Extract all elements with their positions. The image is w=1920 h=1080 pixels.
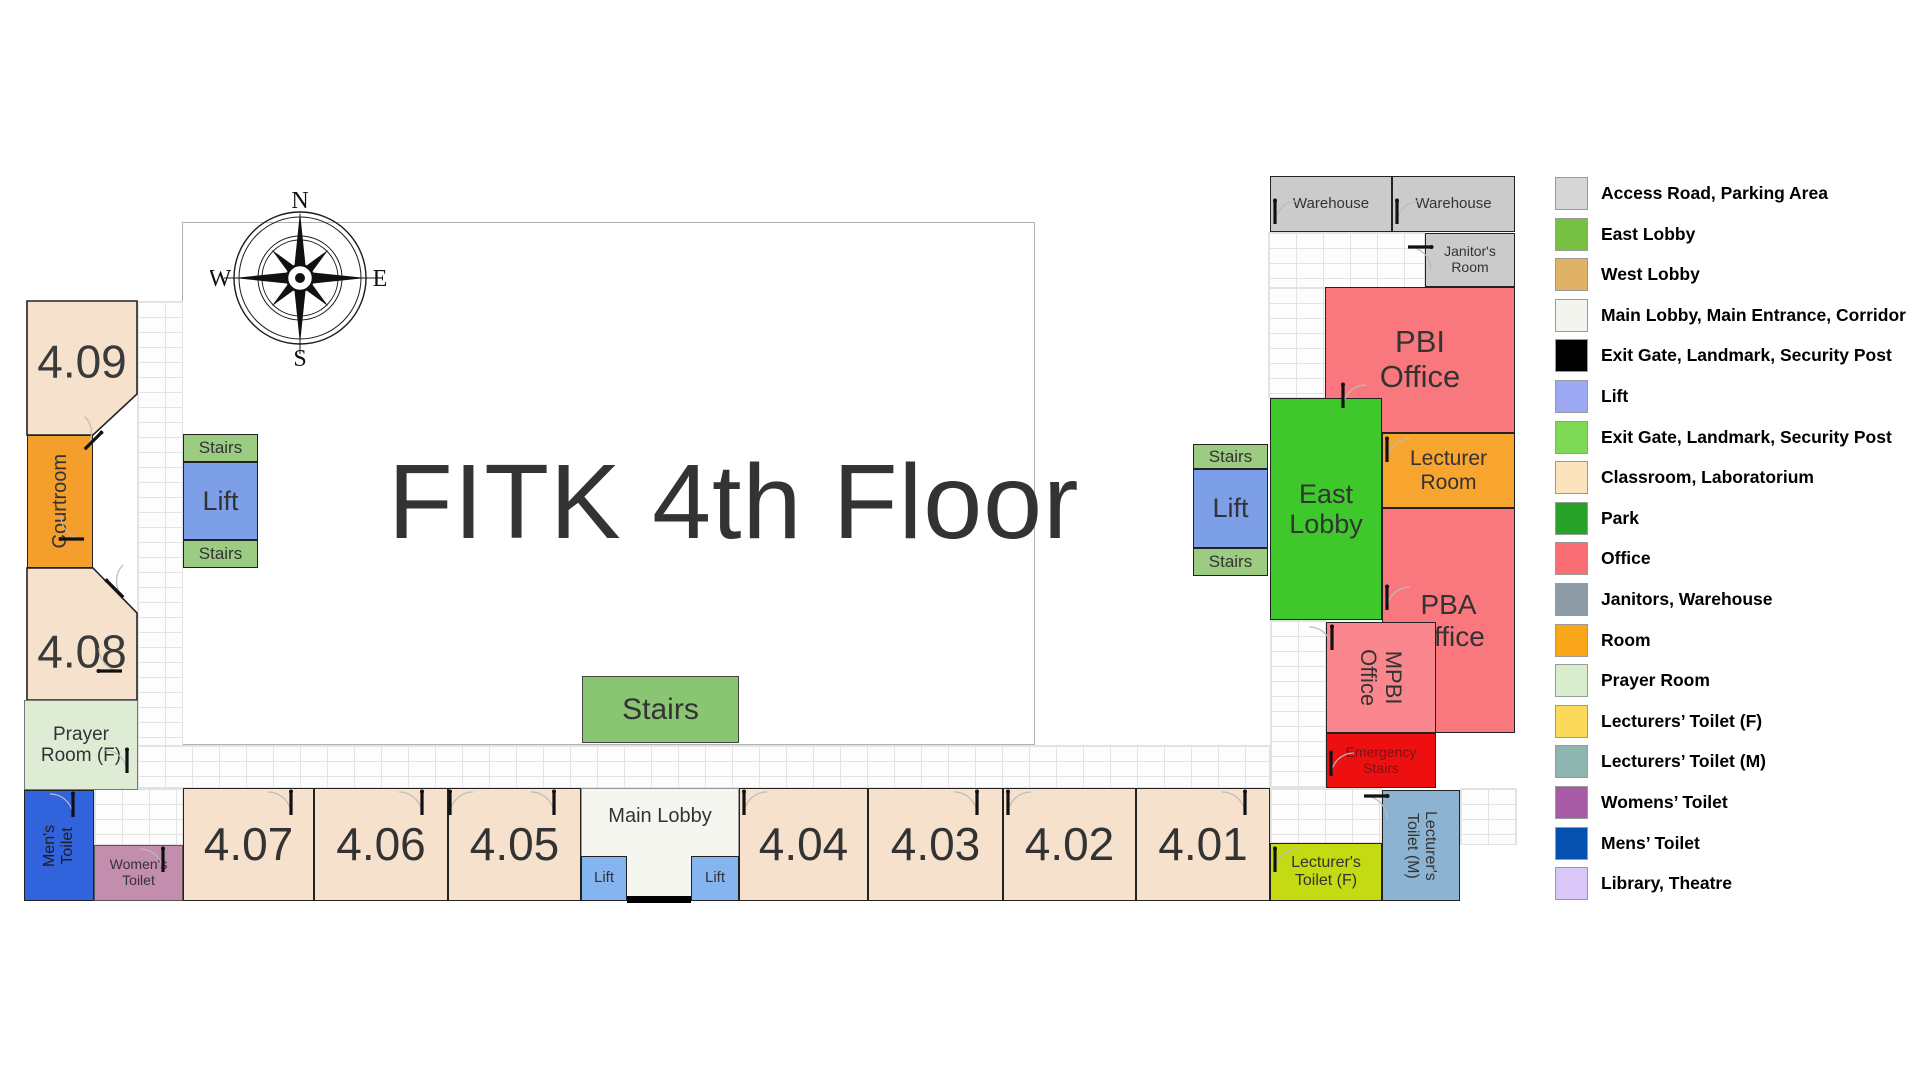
legend-item: Exit Gate, Landmark, Security Post — [1555, 339, 1892, 372]
door-icon — [1394, 198, 1422, 226]
legend-label: Lecturers’ Toilet (F) — [1601, 711, 1762, 732]
door-icon — [1005, 789, 1033, 817]
legend-swatch — [1555, 421, 1588, 454]
legend-label: Library, Theatre — [1601, 873, 1732, 894]
legend-item: Mens’ Toilet — [1555, 827, 1700, 860]
door-icon — [102, 747, 130, 775]
legend-swatch — [1555, 664, 1588, 697]
legend-label: Prayer Room — [1601, 670, 1710, 691]
legend-label: Room — [1601, 630, 1651, 651]
legend-swatch — [1555, 299, 1588, 332]
legend-swatch — [1555, 461, 1588, 494]
legend-label: Lecturers’ Toilet (M) — [1601, 751, 1766, 772]
lecturers-toilet-m-label: Lecturer's Toilet (M) — [1403, 811, 1439, 881]
east-lobby: East Lobby — [1270, 398, 1382, 620]
main-lobby-lift-right-label: Lift — [705, 870, 725, 887]
corridor-east-upper — [1268, 287, 1326, 398]
legend-swatch — [1555, 339, 1588, 372]
lecturers-toilet-m: Lecturer's Toilet (M) — [1382, 790, 1460, 901]
legend-item: Main Lobby, Main Entrance, Corridor — [1555, 299, 1906, 332]
room-4-07: 4.07 — [183, 788, 314, 901]
corridor-west — [137, 301, 183, 788]
stairs-west-bottom: Stairs — [183, 540, 258, 568]
legend-item: Access Road, Parking Area — [1555, 177, 1828, 210]
legend-item: Lift — [1555, 380, 1628, 413]
room-4-01: 4.01 — [1136, 788, 1270, 901]
door-icon — [266, 789, 294, 817]
mpbi-office-label: MPBI Office — [1356, 649, 1405, 706]
legend-label: Exit Gate, Landmark, Security Post — [1601, 427, 1892, 448]
door-icon — [138, 846, 166, 874]
legend-label: East Lobby — [1601, 224, 1695, 245]
legend-swatch — [1555, 380, 1588, 413]
room-4-02-label: 4.02 — [1025, 819, 1115, 871]
legend-swatch — [1555, 542, 1588, 575]
legend-label: Park — [1601, 508, 1639, 529]
legend-swatch — [1555, 258, 1588, 291]
door-icon — [741, 789, 769, 817]
warehouse-right-label: Warehouse — [1415, 196, 1491, 213]
stairs-west-top-label: Stairs — [199, 438, 242, 457]
door-icon — [952, 789, 980, 817]
door-icon — [447, 789, 475, 817]
lift-east: Lift — [1193, 469, 1268, 548]
legend-swatch — [1555, 867, 1588, 900]
janitors-room: Janitor's Room — [1425, 233, 1515, 287]
room-4-07-label: 4.07 — [204, 819, 294, 871]
legend-item: West Lobby — [1555, 258, 1700, 291]
legend-swatch — [1555, 705, 1588, 738]
door-icon — [1307, 624, 1335, 652]
legend-item: Room — [1555, 624, 1651, 657]
door-icon — [1272, 846, 1300, 874]
lecturers-toilet-f-label: Lecturer's Toilet (F) — [1291, 854, 1361, 890]
legend-swatch — [1555, 624, 1588, 657]
legend-label: Mens’ Toilet — [1601, 833, 1700, 854]
courtroom: Courtroom — [27, 435, 93, 568]
door-icon — [48, 791, 76, 819]
legend-item: Office — [1555, 542, 1651, 575]
door-icon — [397, 789, 425, 817]
pbi-office-label: PBI Office — [1380, 325, 1460, 394]
door-icon — [1272, 198, 1300, 226]
door-icon — [96, 646, 124, 674]
room-4-03-label: 4.03 — [891, 819, 981, 871]
page-title: FITK 4th Floor — [388, 442, 1079, 563]
room-4-03: 4.03 — [868, 788, 1003, 901]
legend-item: Lecturers’ Toilet (F) — [1555, 705, 1762, 738]
legend-item: Prayer Room — [1555, 664, 1710, 697]
corridor-east-top — [1268, 232, 1425, 288]
legend-item: Classroom, Laboratorium — [1555, 461, 1814, 494]
legend-swatch — [1555, 786, 1588, 819]
prayer-room-f: Prayer Room (F) — [24, 700, 138, 790]
door-icon — [529, 789, 557, 817]
stairs-east-bottom: Stairs — [1193, 548, 1268, 576]
room-4-04-label: 4.04 — [759, 819, 849, 871]
door-icon — [1384, 584, 1412, 612]
east-lobby-label: East Lobby — [1289, 479, 1363, 539]
legend-label: Exit Gate, Landmark, Security Post — [1601, 345, 1892, 366]
warehouse-left-label: Warehouse — [1293, 196, 1369, 213]
legend-label: Womens’ Toilet — [1601, 792, 1728, 813]
door-icon — [1362, 793, 1390, 821]
door-icon — [1384, 436, 1412, 464]
main-lobby-lift-right: Lift — [691, 856, 739, 901]
legend-label: Access Road, Parking Area — [1601, 183, 1828, 204]
legend-label: Office — [1601, 548, 1651, 569]
legend-swatch — [1555, 583, 1588, 616]
stairs-east-top-label: Stairs — [1209, 447, 1252, 466]
stairs-west-bottom-label: Stairs — [199, 544, 242, 563]
legend-swatch — [1555, 745, 1588, 778]
stairs-east-bottom-label: Stairs — [1209, 552, 1252, 571]
stairs-east-top: Stairs — [1193, 444, 1268, 469]
stairs-central: Stairs — [582, 676, 739, 743]
lift-east-label: Lift — [1212, 493, 1248, 523]
compass-north-label: N — [291, 190, 308, 214]
door-icon — [1328, 750, 1356, 778]
legend-swatch — [1555, 218, 1588, 251]
legend-swatch — [1555, 502, 1588, 535]
lift-west: Lift — [183, 462, 258, 540]
floor-plan: 4.094.08 CourtroomPrayer Room (F)Men's T… — [0, 0, 1920, 1080]
door-icon — [1406, 244, 1434, 272]
room-4-01-label: 4.01 — [1158, 819, 1248, 871]
legend-swatch — [1555, 827, 1588, 860]
legend-label: Classroom, Laboratorium — [1601, 467, 1814, 488]
janitors-room-label: Janitor's Room — [1444, 244, 1496, 275]
room-4-05-label: 4.05 — [470, 819, 560, 871]
door-icon — [1220, 789, 1248, 817]
stairs-central-label: Stairs — [622, 693, 699, 727]
lift-west-label: Lift — [202, 486, 238, 516]
main-lobby-lift-left-label: Lift — [594, 870, 614, 887]
corridor-west-lower — [94, 788, 183, 845]
emergency-stairs-label: Emergency Stairs — [1346, 745, 1417, 776]
legend-label: Main Lobby, Main Entrance, Corridor — [1601, 305, 1906, 326]
legend-item: East Lobby — [1555, 218, 1695, 251]
legend-item: Womens’ Toilet — [1555, 786, 1728, 819]
main-lobby-lift-left: Lift — [581, 856, 627, 901]
corridor-south — [137, 745, 1270, 788]
legend-item: Janitors, Warehouse — [1555, 583, 1772, 616]
legend-item: Park — [1555, 502, 1639, 535]
main-lobby-label: Main Lobby — [608, 805, 711, 827]
mens-toilet-label: Men's Toilet — [41, 824, 77, 866]
corridor-east-toilet-m — [1460, 788, 1517, 845]
room-4-06-label: 4.06 — [336, 819, 426, 871]
legend-item: Lecturers’ Toilet (M) — [1555, 745, 1766, 778]
mpbi-office: MPBI Office — [1326, 622, 1436, 733]
legend-label: Janitors, Warehouse — [1601, 589, 1772, 610]
legend-swatch — [1555, 177, 1588, 210]
legend-item: Exit Gate, Landmark, Security Post — [1555, 421, 1892, 454]
room-4-06: 4.06 — [314, 788, 448, 901]
door-icon — [1340, 382, 1368, 410]
legend-label: Lift — [1601, 386, 1628, 407]
main-entrance-bar — [627, 896, 691, 903]
legend-item: Library, Theatre — [1555, 867, 1732, 900]
door-icon — [58, 514, 86, 542]
room-4-09-label: 4.09 — [37, 336, 127, 388]
legend-label: West Lobby — [1601, 264, 1700, 285]
stairs-west-top: Stairs — [183, 434, 258, 462]
lecturer-room-label: Lecturer Room — [1410, 447, 1487, 494]
